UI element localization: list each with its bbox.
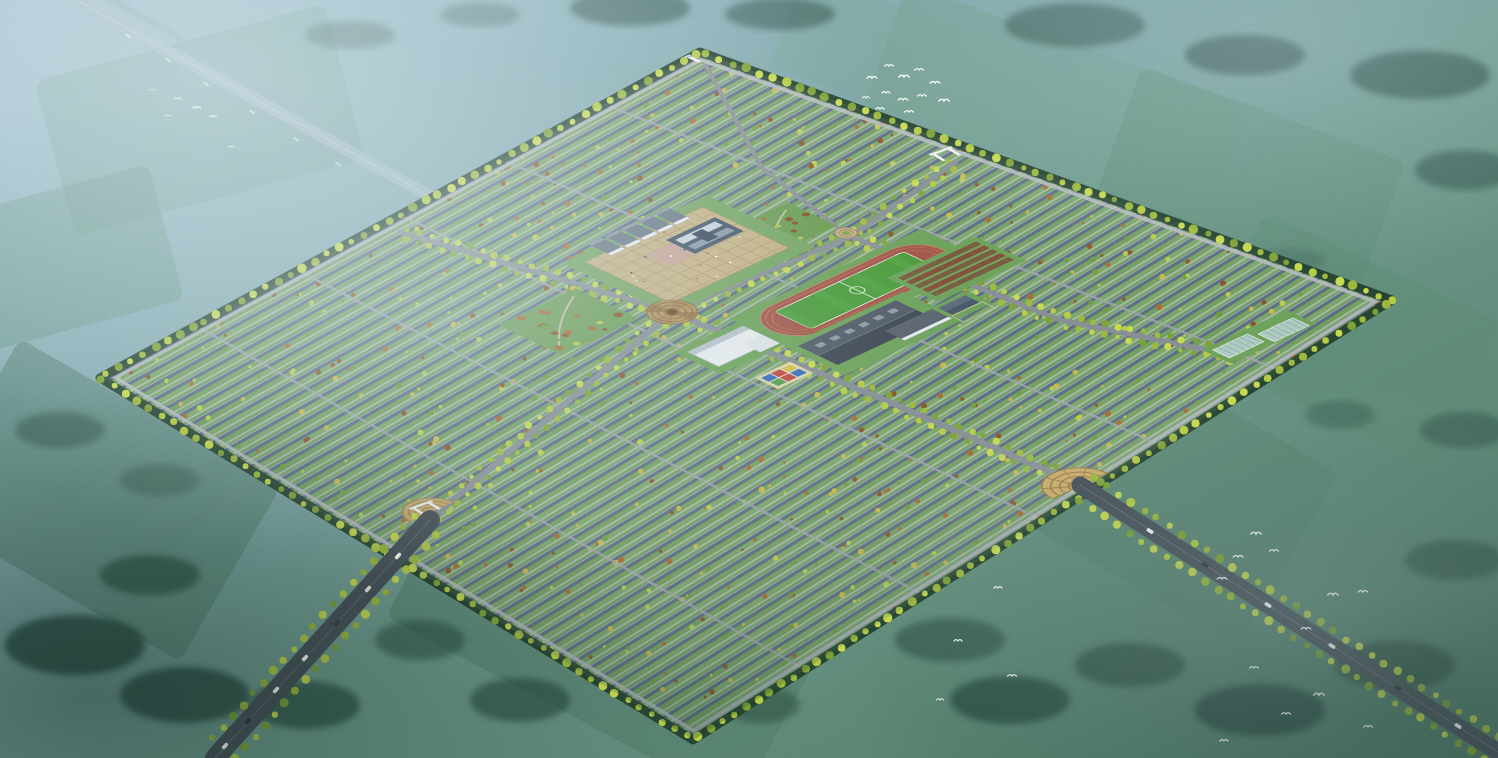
screenshot-root — [0, 0, 1498, 758]
village-master-plan-rendering — [0, 0, 1498, 758]
